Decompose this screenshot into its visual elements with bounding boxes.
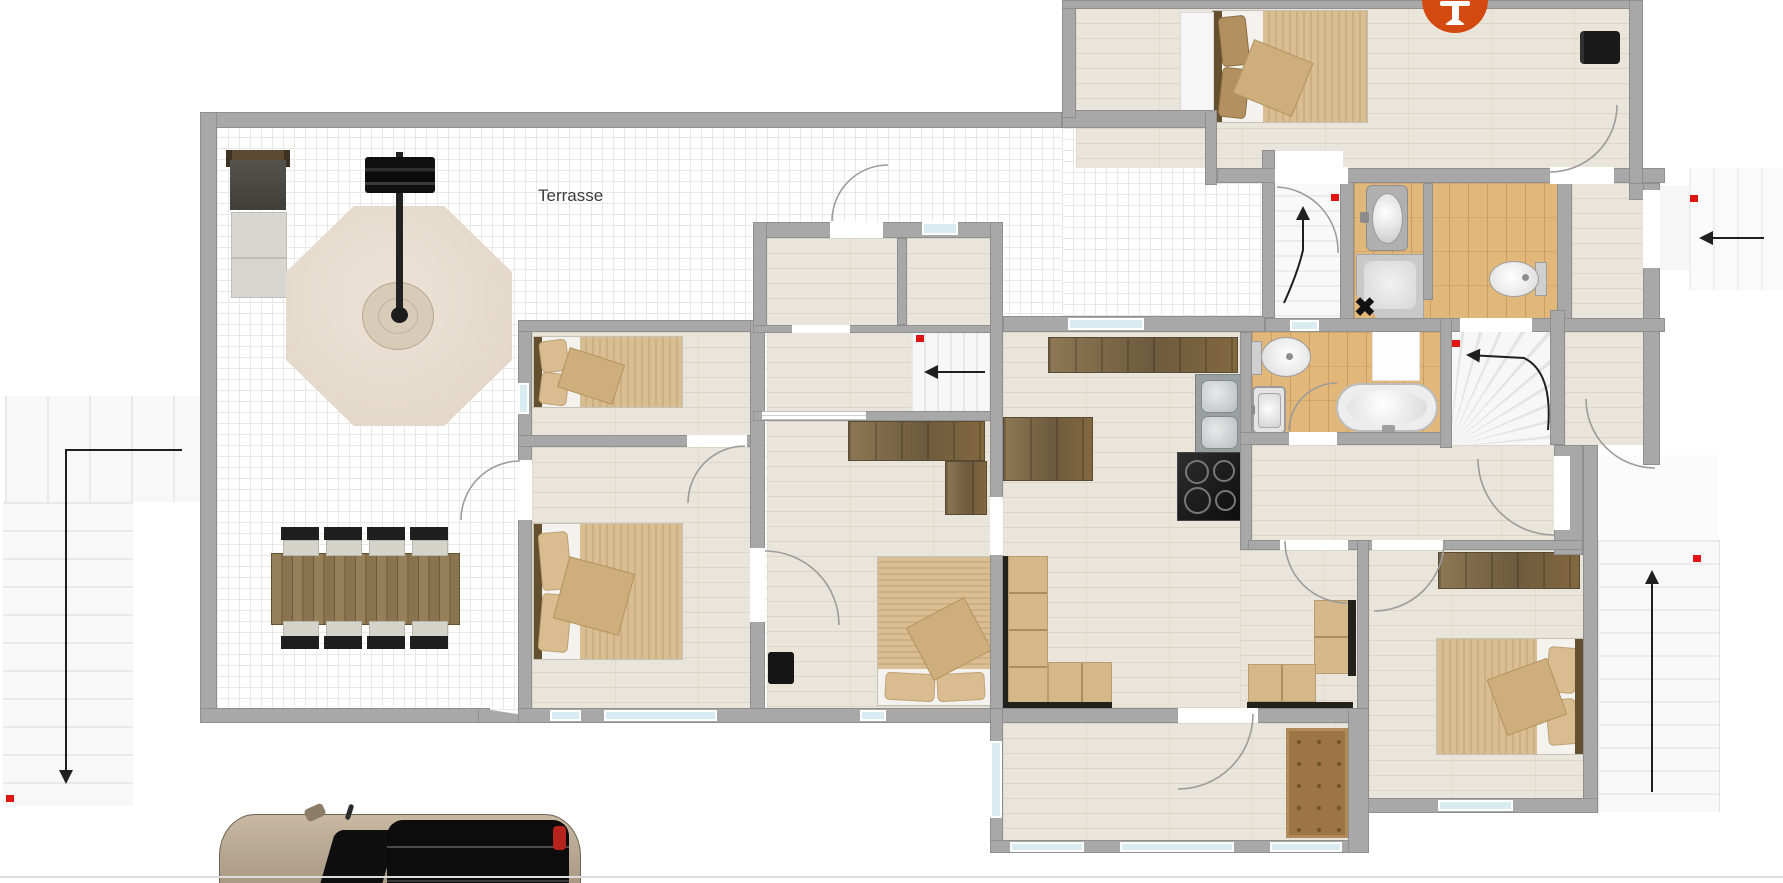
window[interactable] (1438, 800, 1513, 811)
dining-chair[interactable] (367, 621, 405, 649)
bed-headboard (1575, 639, 1583, 754)
sofa-back (1348, 600, 1356, 676)
wall (1340, 168, 1354, 332)
chair-back (410, 527, 448, 540)
kitchen-island[interactable] (1003, 417, 1093, 481)
chair-seat (412, 621, 448, 637)
door-opening[interactable] (1178, 708, 1258, 723)
dining-chair[interactable] (324, 527, 362, 554)
chair-back (367, 527, 405, 540)
sink-basin (1201, 380, 1238, 413)
wall (1423, 183, 1433, 300)
wall (753, 222, 767, 332)
sun-lounger[interactable] (226, 150, 290, 296)
lounger-cushion (231, 212, 287, 258)
bed-b[interactable] (533, 523, 683, 660)
toilet-bowl (1489, 261, 1539, 297)
exterior-stairs-left-flight (5, 396, 200, 502)
window[interactable] (860, 710, 886, 721)
chair-seat (369, 540, 405, 556)
wall (200, 708, 490, 723)
burner (1185, 460, 1209, 484)
window[interactable] (604, 710, 717, 721)
chair-back (410, 636, 448, 649)
sliding-door[interactable] (762, 411, 866, 420)
dining-chair[interactable] (281, 621, 319, 649)
wall (518, 320, 763, 332)
bed-pillow (936, 672, 985, 702)
dresser[interactable] (1438, 552, 1580, 589)
basin (1372, 193, 1403, 244)
dining-chair[interactable] (281, 527, 319, 554)
burner (1184, 487, 1211, 514)
window[interactable] (518, 383, 529, 414)
wardrobe[interactable] (1180, 12, 1214, 124)
door-opening[interactable] (750, 548, 765, 622)
toilet-main[interactable] (1250, 336, 1312, 378)
door-opening[interactable] (1289, 432, 1337, 445)
pedestal-table-icon (1452, 6, 1459, 19)
parasol-crossbar (365, 157, 435, 193)
toilet-flush (1522, 274, 1529, 281)
chair-seat (283, 621, 319, 637)
sofa-cushions (1008, 556, 1048, 706)
wall (1440, 318, 1452, 448)
car-roof (387, 820, 569, 883)
lounger-cushion (231, 258, 287, 298)
toilet-upper[interactable] (1488, 260, 1546, 296)
chair-back (281, 527, 319, 540)
chair-back (281, 636, 319, 649)
dining-chair[interactable] (324, 621, 362, 649)
sofa-cushions (1314, 600, 1350, 674)
hallway-floor (767, 332, 913, 411)
wall (1240, 432, 1450, 445)
curved-stairs (1447, 332, 1550, 445)
pedestal-table-icon (1444, 17, 1466, 25)
dining-chair[interactable] (367, 527, 405, 554)
exterior-stairs-right-bottom-landing (1598, 455, 1718, 540)
tv-top-right[interactable] (1580, 31, 1620, 64)
right-hall-floor (1572, 183, 1643, 318)
dining-chair[interactable] (410, 527, 448, 554)
sink-basin (1201, 416, 1238, 449)
bed-bottom-right[interactable] (1436, 638, 1583, 755)
window[interactable] (1290, 320, 1319, 331)
wall (1629, 0, 1643, 190)
bed-top-right[interactable] (1212, 10, 1368, 123)
selection-dot (916, 335, 924, 342)
storage-room-floor (767, 238, 897, 325)
door-opening[interactable] (1460, 318, 1532, 332)
wall (518, 320, 532, 723)
terrace-label: Terrasse (538, 186, 603, 206)
faucet (1360, 212, 1369, 223)
chair-back (367, 636, 405, 649)
patio-floor (1062, 183, 1264, 318)
wall (1557, 178, 1572, 332)
exterior-stairs-left-flight (3, 502, 133, 806)
window[interactable] (1270, 842, 1342, 852)
window[interactable] (1068, 318, 1144, 330)
burner (1215, 490, 1236, 511)
corner-sofa-west[interactable] (1002, 556, 1112, 710)
wall (1205, 110, 1217, 185)
hall-floor (1252, 445, 1554, 540)
window[interactable] (550, 710, 581, 721)
door-opening[interactable] (830, 222, 883, 238)
washbasin-main[interactable] (1252, 386, 1286, 434)
wall (1550, 310, 1565, 445)
chair-seat (326, 540, 362, 556)
selection-dot (1693, 555, 1701, 562)
bed-center[interactable] (877, 556, 993, 706)
door-opening[interactable] (1643, 190, 1660, 268)
bathtub[interactable] (1336, 383, 1438, 432)
tv-center[interactable] (768, 652, 794, 684)
door-opening[interactable] (1554, 456, 1570, 530)
basin (1258, 393, 1281, 428)
wall (1348, 708, 1369, 853)
double-sink[interactable] (1195, 374, 1244, 454)
burner (1213, 460, 1235, 482)
door-opening[interactable] (1275, 167, 1348, 184)
wall (897, 238, 907, 325)
chair-seat (412, 540, 448, 556)
exterior-stairs-right-top-landing (1660, 186, 1689, 270)
chair-seat (283, 540, 319, 556)
window[interactable] (990, 741, 1002, 818)
bath-mat[interactable] (1372, 331, 1420, 381)
lounger-frame (226, 150, 290, 160)
desk[interactable] (848, 421, 985, 461)
washbasin-upper[interactable] (1366, 185, 1408, 251)
window[interactable] (922, 222, 958, 235)
window[interactable] (1010, 842, 1084, 852)
chair-back (324, 636, 362, 649)
kitchen-counter[interactable] (1048, 337, 1238, 373)
selection-dot (1331, 194, 1339, 201)
parasol-pole-base (391, 307, 408, 323)
lounger-back (230, 160, 286, 210)
hall-stairs (911, 332, 993, 411)
chair-seat (326, 621, 362, 637)
exterior-stairs-right-bottom (1598, 540, 1720, 812)
right-hall-floor (1565, 332, 1643, 445)
exterior-stairs-right-top (1689, 168, 1783, 290)
car-taillight (553, 826, 566, 850)
door-opening[interactable] (1550, 167, 1614, 184)
tub-basin (1347, 390, 1427, 425)
wall (1062, 110, 1217, 128)
selection-dot (1452, 340, 1460, 347)
wall (1583, 445, 1598, 813)
toilet-flush (1286, 353, 1293, 360)
sofa-cushions (1048, 662, 1112, 706)
viewport-edge-line (0, 876, 1783, 878)
bed-pillow (884, 672, 935, 703)
wall (1062, 0, 1643, 9)
wall (750, 320, 765, 723)
wall (200, 112, 1062, 128)
door-opening[interactable] (1280, 540, 1348, 550)
chair-seat (369, 621, 405, 637)
door-opening[interactable] (1372, 540, 1443, 550)
bed-a[interactable] (533, 336, 683, 408)
selection-dot (1690, 195, 1698, 202)
desk[interactable] (945, 461, 987, 515)
storage-room-floor (907, 238, 990, 325)
chair-back (324, 527, 362, 540)
wall (200, 112, 217, 723)
door-opening[interactable] (687, 435, 747, 447)
floorplan-canvas[interactable]: ✖ (0, 0, 1783, 883)
dining-table[interactable] (271, 553, 460, 625)
sofa-cushions (1248, 664, 1316, 702)
door-opening[interactable] (518, 460, 532, 520)
car[interactable] (219, 810, 579, 883)
wall (753, 325, 1003, 333)
dining-chair[interactable] (410, 621, 448, 649)
door-opening[interactable] (990, 497, 1003, 555)
tufted-bench[interactable] (1286, 728, 1348, 838)
selection-dot (6, 795, 14, 802)
stove[interactable] (1177, 452, 1243, 521)
corner-sofa-east[interactable] (1247, 600, 1357, 710)
wall (1062, 0, 1076, 118)
window[interactable] (1120, 842, 1234, 852)
door-opening[interactable] (792, 325, 850, 333)
